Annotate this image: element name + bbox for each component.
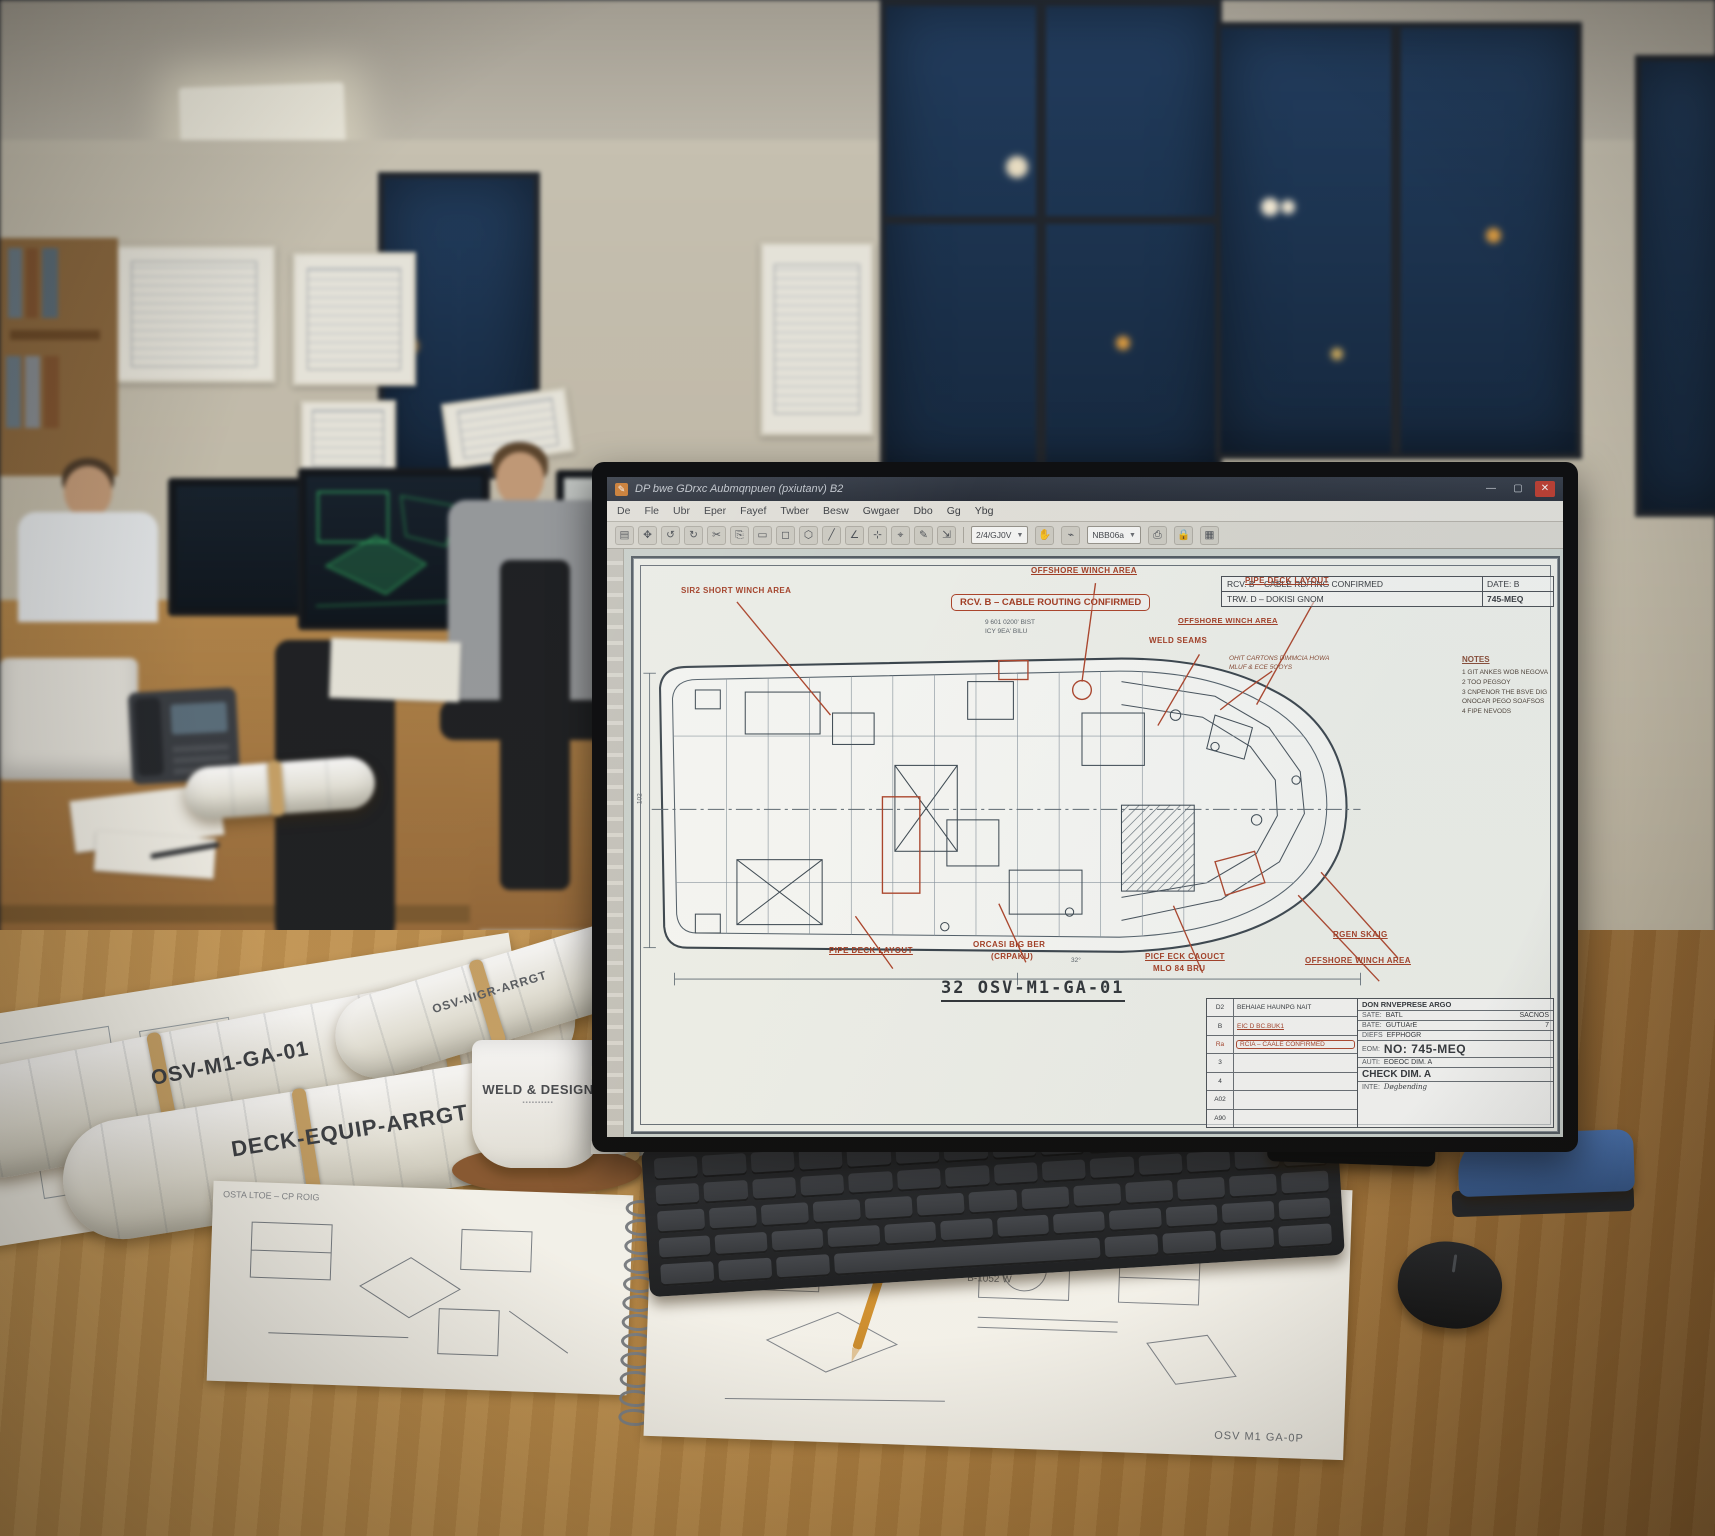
annotation-label: OFFSHORE WINCH AREA (1305, 956, 1411, 965)
keyboard-key[interactable] (897, 1168, 942, 1192)
rev-date: DATE: B (1483, 577, 1553, 591)
toolbar-icon[interactable]: ◻ (776, 526, 795, 545)
annotation-label: RGEN SKAIG (1333, 930, 1388, 939)
annotation-label: WELD SEAMS (1149, 636, 1207, 645)
keyboard-key[interactable] (752, 1177, 797, 1201)
field-value: EOEOC DIM. A (1384, 1059, 1432, 1066)
toolbar-icons: ▤✥↺↻✂⎘▭◻⬡╱∠⊹⌖✎⇲ (615, 526, 956, 545)
window (1215, 22, 1582, 459)
keyboard-key[interactable] (945, 1165, 990, 1189)
keyboard-key[interactable] (940, 1218, 993, 1243)
keyboard-key[interactable] (761, 1202, 809, 1226)
keyboard-key[interactable] (1186, 1150, 1231, 1174)
keyboard-key[interactable] (1162, 1231, 1216, 1256)
company-name: DON RNVEPRESE ARGO (1362, 1000, 1451, 1009)
annotation-label: PIPE DECK LAYOUT (1245, 576, 1329, 585)
menu-item[interactable]: Gwgaer (863, 505, 900, 517)
check-dim: CHECK DIM. A (1362, 1069, 1431, 1080)
annotation-label: PIPE DECK LAYOUT (829, 946, 913, 955)
rev-id: Ra (1207, 1036, 1234, 1053)
handwritten-note: OHIT CARTONS DIMMCIA HOWA (1229, 654, 1330, 663)
desk-edge (0, 905, 480, 923)
toolbar-icon[interactable]: ✥ (638, 526, 657, 545)
rev-text: RCIA – CAALE CONFIRMED (1236, 1040, 1355, 1049)
menu-item[interactable]: Gg (947, 505, 961, 517)
toolbar-icon[interactable]: ✂ (707, 526, 726, 545)
revision-history-table: D2BEHAIAE HAUNPG NAIT BEIC D BC.BUK1 RaR… (1207, 999, 1358, 1127)
keyboard-key[interactable] (718, 1258, 772, 1283)
rev-id: D2 (1207, 999, 1234, 1016)
keyboard-key[interactable] (776, 1254, 830, 1279)
keyboard-key[interactable] (1177, 1177, 1225, 1201)
wall-drawing (300, 400, 396, 476)
toolbar-icon[interactable]: ▭ (753, 526, 772, 545)
window (880, 0, 1222, 480)
menu-item[interactable]: Fayef (740, 505, 766, 517)
toolbar-icon[interactable]: ⇲ (937, 526, 956, 545)
angle-note: 32° (1071, 956, 1081, 965)
dim-note: ICY 9EA' BILU (985, 627, 1035, 636)
zoom-value: 2/4/GJ0V (976, 530, 1011, 540)
note-item: 3 CNPENOR THE BSVE DIG (1462, 688, 1552, 698)
keyboard-key[interactable] (659, 1235, 712, 1260)
side-tool-strip[interactable] (607, 549, 624, 1137)
menu-item[interactable]: Dbo (913, 505, 932, 517)
keyboard-key[interactable] (715, 1232, 768, 1257)
minimize-button[interactable]: — (1481, 481, 1501, 497)
keyboard-key[interactable] (709, 1206, 757, 1230)
background-monitor (168, 478, 310, 616)
keyboard-key[interactable] (800, 1174, 845, 1198)
keyboard-key[interactable] (702, 1153, 747, 1177)
annotation-label: PICF ECK CAOUCT (1145, 952, 1225, 961)
annotation-label: ORCASI BIG BER (973, 940, 1045, 949)
drawing-canvas[interactable]: RCV. B – CABLE ROUTING CONFIRMED RCV. B … (607, 549, 1563, 1137)
keyboard-key[interactable] (1109, 1208, 1162, 1233)
toolbar-icon[interactable]: ⬡ (799, 526, 818, 545)
annotation-label: OFFSHORE WINCH AREA (1031, 566, 1137, 575)
toolbar-icon[interactable]: ⎘ (730, 526, 749, 545)
toolbar-icon[interactable]: ⌖ (891, 526, 910, 545)
keyboard-key[interactable] (996, 1214, 1049, 1239)
rev-id: A90 (1207, 1110, 1234, 1127)
note-item: 2 TOO PEGSOY (1462, 678, 1552, 688)
keyboard-key[interactable] (704, 1180, 749, 1204)
menu-item[interactable]: Ubr (673, 505, 690, 517)
note-item: ONOCAR PEGO SOAFSOS (1462, 697, 1552, 707)
mug: WELD & DESIGN ▪▪▪▪▪▪▪▪▪▪ (472, 1040, 604, 1168)
keyboard-key[interactable] (1222, 1201, 1275, 1226)
revision-stamp: RCV. B – CABLE ROUTING CONFIRMED (951, 594, 1150, 611)
annotation-label: (CRPAKU) (991, 952, 1033, 961)
field-value: EFPHOGR (1387, 1032, 1422, 1039)
keyboard-key[interactable] (969, 1190, 1017, 1214)
annotation-label: SIR2 SHORT WINCH AREA (681, 586, 791, 595)
field-extra: SACNOS (1519, 1012, 1549, 1019)
toolbar-icon[interactable]: ∠ (845, 526, 864, 545)
keyboard-key[interactable] (1125, 1180, 1173, 1204)
chevron-down-icon: ▼ (1129, 532, 1136, 539)
rev-id: 4 (1207, 1073, 1234, 1090)
keyboard-key[interactable] (1220, 1227, 1274, 1252)
window (1635, 55, 1715, 517)
wall-drawing (760, 242, 874, 436)
toolbar-icon[interactable]: ⊹ (868, 526, 887, 545)
keyboard-key[interactable] (813, 1199, 861, 1223)
menu-item[interactable]: Eper (704, 505, 726, 517)
grid-icon[interactable]: ▦ (1200, 526, 1219, 545)
rev-id: B (1207, 1017, 1234, 1034)
menu-item[interactable]: Ybg (975, 505, 994, 517)
field-extra: 7 (1545, 1022, 1549, 1029)
keyboard-key[interactable] (1165, 1204, 1218, 1229)
field-value: Døgbending (1384, 1083, 1427, 1091)
title-block: D2BEHAIAE HAUNPG NAIT BEIC D BC.BUK1 RaR… (1206, 998, 1554, 1128)
drawing-number: 32 OSV-M1-GA-01 (941, 978, 1125, 1002)
note-item: 4 FIPE NEVODS (1462, 707, 1552, 717)
window-titlebar[interactable]: ✎ DP bwe GDrxc Aubmqnpuen (pxiutanv) B2 … (607, 477, 1563, 501)
note-item: 1 GIT ANKES WOB NEGOVA (1462, 668, 1552, 678)
print-icon[interactable]: ⎙ (1148, 526, 1167, 545)
window-title: DP bwe GDrxc Aubmqnpuen (pxiutanv) B2 (635, 483, 1474, 495)
keyboard-key[interactable] (660, 1262, 714, 1287)
mug-subtext: ▪▪▪▪▪▪▪▪▪▪ (472, 1100, 604, 1106)
menu-bar: De Fle Ubr Eper Fayef Twber Besw Gwgaer … (607, 501, 1563, 522)
layer-value: NBB06a (1092, 530, 1124, 540)
keyboard-key[interactable] (1041, 1159, 1086, 1183)
notes-title: NOTES (1462, 654, 1552, 666)
keyboard-key[interactable] (1278, 1197, 1331, 1222)
toolbar-icon[interactable]: ╱ (822, 526, 841, 545)
layer-dropdown[interactable]: NBB06a▼ (1087, 526, 1141, 544)
toolbar-icon[interactable]: ↻ (684, 526, 703, 545)
field-label: SATE: (1362, 1012, 1382, 1019)
keyboard-key[interactable] (1278, 1224, 1332, 1249)
field-value: BATL (1386, 1012, 1403, 1019)
chevron-down-icon: ▼ (1016, 532, 1023, 539)
wall-drawing (112, 245, 276, 383)
field-label: AUTI: (1362, 1059, 1380, 1066)
menu-item[interactable]: De (617, 505, 630, 517)
menu-item[interactable]: Fle (644, 505, 659, 517)
keyboard-key[interactable] (1073, 1183, 1121, 1207)
keyboard-key[interactable] (917, 1193, 965, 1217)
zoom-dropdown[interactable]: 2/4/GJ0V▼ (971, 526, 1028, 544)
keyboard-key[interactable] (1229, 1174, 1277, 1198)
keyboard-key[interactable] (848, 1171, 893, 1195)
dim-note: 9 601 0200' BIST (985, 618, 1035, 627)
mug-text: WELD & DESIGN (472, 1082, 604, 1097)
handwritten-note: MLUF & ECE 5OOYS (1229, 663, 1330, 672)
dim-value: 102 (636, 793, 645, 804)
toolbar-icon[interactable]: ↺ (661, 526, 680, 545)
toolbar-icon[interactable]: ✎ (914, 526, 933, 545)
keyboard-key[interactable] (1053, 1211, 1106, 1236)
keyboard-key[interactable] (1281, 1171, 1329, 1195)
rev-id: A02 (1207, 1091, 1234, 1108)
rev-date: 745-MEQ (1483, 592, 1553, 606)
toolbar-icon[interactable]: ▤ (615, 526, 634, 545)
keyboard-key[interactable] (993, 1162, 1038, 1186)
office-scene: OSV-M1-GA-01 OSV-NIGR-ARRGT DECK-EQUIP-A… (0, 0, 1715, 1536)
pan-tool-icon[interactable]: ✋ (1035, 526, 1054, 545)
close-button[interactable]: ✕ (1535, 481, 1555, 497)
keyboard-key[interactable] (1090, 1156, 1135, 1180)
keyboard-key[interactable] (657, 1209, 705, 1233)
rev-text: BEHAIAE HAUNPG NAIT (1234, 1004, 1357, 1011)
field-label: BATE: (1362, 1022, 1382, 1029)
field-label: INTE: (1362, 1084, 1380, 1091)
keyboard-key[interactable] (655, 1183, 700, 1207)
document-tray (329, 638, 461, 703)
field-label: EOM: (1362, 1046, 1380, 1053)
maximize-button[interactable]: ▢ (1508, 481, 1528, 497)
keyboard-key[interactable] (1138, 1153, 1183, 1177)
monitor: ✎ DP bwe GDrxc Aubmqnpuen (pxiutanv) B2 … (592, 462, 1578, 1152)
keyboard-key[interactable] (1021, 1187, 1069, 1211)
rev-id: 3 (1207, 1054, 1234, 1071)
annotation-label: OFFSHORE WINCH AREA (1178, 616, 1278, 625)
bookshelf (0, 238, 118, 476)
field-value: GUTUArE (1386, 1022, 1418, 1029)
keyboard-key[interactable] (654, 1156, 699, 1180)
keyboard-key[interactable] (865, 1196, 913, 1220)
pencil-sketch (207, 1181, 634, 1396)
keyboard-key[interactable] (828, 1225, 881, 1250)
toolbar: ▤✥↺↻✂⎘▭◻⬡╱∠⊹⌖✎⇲ 2/4/GJ0V▼ ✋ ⌁ NBB06a▼ ⎙ … (607, 522, 1563, 549)
lock-icon[interactable]: 🔒 (1174, 526, 1193, 545)
drawing-no: NO: 745-MEQ (1384, 1042, 1466, 1056)
wall-drawing (292, 252, 416, 386)
rev-desc: TRW. D – DOKISI GNOM (1222, 592, 1483, 606)
keyboard-key[interactable] (884, 1221, 937, 1246)
keyboard-key[interactable] (1104, 1234, 1158, 1259)
field-label: DIEFS (1362, 1032, 1383, 1039)
notes-block: NOTES 1 GIT ANKES WOB NEGOVA 2 TOO PEGSO… (1462, 654, 1552, 717)
cad-application: ✎ DP bwe GDrxc Aubmqnpuen (pxiutanv) B2 … (607, 477, 1563, 1137)
drawing-sheet: RCV. B – CABLE ROUTING CONFIRMED RCV. B … (631, 556, 1560, 1134)
rev-text: EIC D BC.BUK1 (1234, 1023, 1357, 1030)
keyboard-key[interactable] (771, 1228, 824, 1253)
keyboard-key[interactable] (750, 1150, 795, 1174)
menu-item[interactable]: Besw (823, 505, 849, 517)
notebook-left-page: OSTA LTOE – CP ROIG (207, 1181, 634, 1396)
title-block-fields: DON RNVEPRESE ARGO SATE:BATLSACNOS BATE:… (1358, 999, 1553, 1127)
app-icon: ✎ (615, 483, 628, 496)
measure-tool-icon[interactable]: ⌁ (1061, 526, 1080, 545)
annotation-label: MLO 84 BRU (1153, 964, 1205, 973)
menu-item[interactable]: Twber (780, 505, 809, 517)
printer (0, 658, 138, 780)
